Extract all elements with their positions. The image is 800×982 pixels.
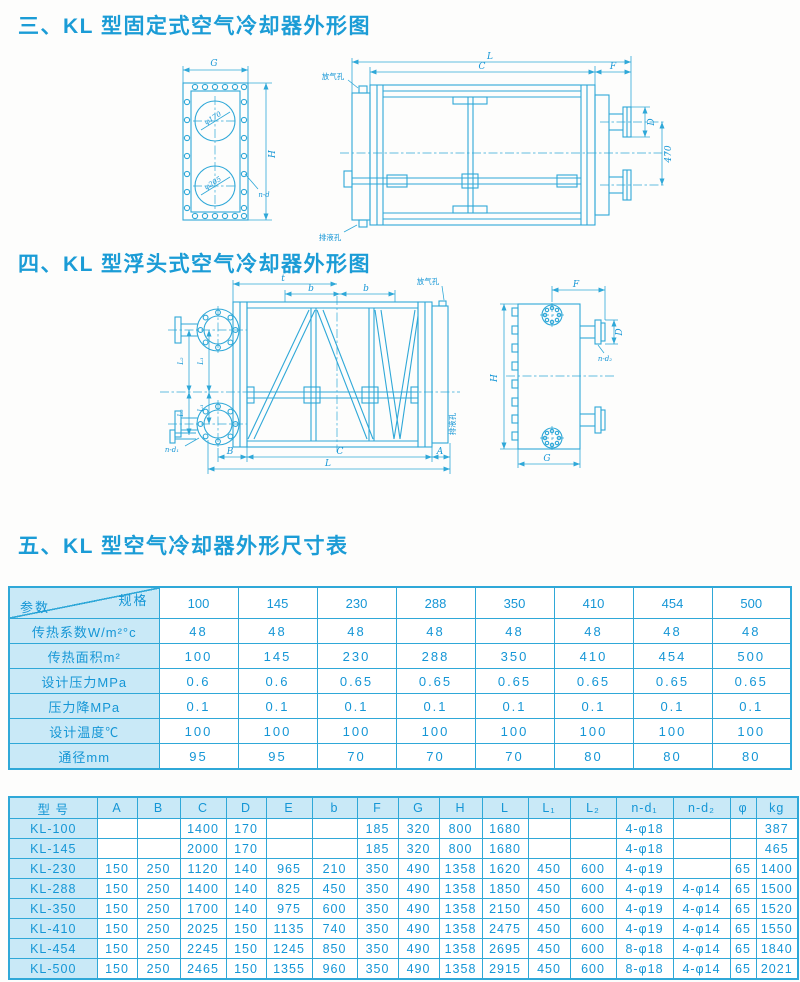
drain-hole-label: 排液孔 (319, 232, 342, 242)
table2-cell (137, 839, 180, 859)
table1-row: 传热面积m²100145230288350410454500 (9, 644, 791, 669)
table1-spec-header: 500 (712, 587, 791, 619)
table2-cell: 4-φ18 (616, 819, 673, 839)
table1-cell: 0.1 (159, 694, 238, 719)
table2-cell: 965 (266, 859, 312, 879)
table2-cell: 8-φ18 (616, 939, 673, 959)
table2-cell: 825 (266, 879, 312, 899)
table2-cell: 185 (357, 839, 398, 859)
table1-cell: 80 (554, 744, 633, 770)
floating-side-view: D n-d₂ F H G (490, 280, 625, 468)
table2-cell (137, 819, 180, 839)
table2-cell: 2025 (180, 919, 226, 939)
table1-cell: 0.6 (159, 669, 238, 694)
table1-cell: 0.1 (317, 694, 396, 719)
table2-cell: 2695 (482, 939, 528, 959)
table2-cell: 4-φ19 (616, 919, 673, 939)
table1-cell: 80 (712, 744, 791, 770)
table2-cell: 600 (570, 959, 616, 980)
table2-cell: 1358 (439, 959, 482, 980)
table2-model-cell: KL-288 (9, 879, 97, 899)
table2-header-cell: H (439, 797, 482, 819)
table2-cell: 150 (97, 919, 137, 939)
table2-cell: 490 (398, 879, 439, 899)
table1-cell: 48 (475, 619, 554, 644)
dim-A-label: A (436, 447, 444, 457)
table2-cell: 1520 (756, 899, 798, 919)
table1-cell: 48 (159, 619, 238, 644)
dim-G-label: G (543, 454, 550, 464)
table2-cell (266, 819, 312, 839)
table2-cell: 140 (226, 859, 266, 879)
table2-cell: 250 (137, 959, 180, 980)
vent-hole (439, 301, 446, 306)
table1-cell: 80 (633, 744, 712, 770)
dim-L1-top-label: L₁ (197, 357, 205, 366)
table2-cell: 600 (570, 879, 616, 899)
table1-cell: 0.65 (396, 669, 475, 694)
table2-cell: 740 (312, 919, 357, 939)
table2-header-cell: L₁ (528, 797, 570, 819)
dim-F-label: F (572, 280, 580, 290)
table1-spec-header: 454 (633, 587, 712, 619)
table2-cell: 250 (137, 879, 180, 899)
table2-cell: 250 (137, 939, 180, 959)
table2-cell: 4-φ18 (616, 839, 673, 859)
table2-model-cell: KL-145 (9, 839, 97, 859)
table2-cell: 150 (226, 939, 266, 959)
table2-cell: 250 (137, 899, 180, 919)
table2-cell (730, 819, 756, 839)
table2-cell: 800 (439, 819, 482, 839)
table2-cell: 600 (570, 899, 616, 919)
dim-G-label: G (210, 59, 217, 69)
dim-b1-label: b (308, 284, 314, 294)
table2-header-cell: C (180, 797, 226, 819)
table1-spec-header: 145 (238, 587, 317, 619)
table1-cell: 100 (238, 719, 317, 744)
table1-spec-header: 230 (317, 587, 396, 619)
table2-cell: 4-φ19 (616, 859, 673, 879)
table2-cell: 600 (570, 859, 616, 879)
dim-L2-bottom-label: L₂ (177, 409, 185, 418)
table2-cell: 490 (398, 859, 439, 879)
table2-cell: 1840 (756, 939, 798, 959)
table2-model-cell: KL-100 (9, 819, 97, 839)
table1-row: 压力降MPa0.10.10.10.10.10.10.10.1 (9, 694, 791, 719)
table1-cell: 230 (317, 644, 396, 669)
table1-cell: 454 (633, 644, 712, 669)
table1-cell: 70 (475, 744, 554, 770)
table2-header-cell: E (266, 797, 312, 819)
table2-cell: 4-φ14 (673, 959, 730, 980)
vent-hole (359, 86, 367, 93)
table2-cell: 65 (730, 859, 756, 879)
table2-cell: 1358 (439, 899, 482, 919)
table1-spec-header: 100 (159, 587, 238, 619)
table2-cell: 1680 (482, 819, 528, 839)
dim-C-label: C (479, 62, 486, 72)
table2-cell: 4-φ19 (616, 899, 673, 919)
table1-cell: 0.1 (396, 694, 475, 719)
fixed-front-view: φ170 φ205 G H n-d (183, 59, 278, 220)
table2-cell: 350 (357, 859, 398, 879)
table1-cell: 100 (159, 719, 238, 744)
section5-title: 五、KL 型空气冷却器外形尺寸表 (18, 530, 348, 560)
table2-cell (97, 839, 137, 859)
table2-cell: 1358 (439, 879, 482, 899)
n-d2-hole-label: n-d₂ (598, 355, 612, 363)
table2-cell: 150 (97, 859, 137, 879)
table2-cell: 350 (357, 919, 398, 939)
table1-row: 设计温度℃100100100100100100100100 (9, 719, 791, 744)
table2-cell: 320 (398, 819, 439, 839)
table1-cell: 0.1 (633, 694, 712, 719)
table2-cell: 210 (312, 859, 357, 879)
catalog-page: 三、KL 型固定式空气冷却器外形图 φ170 (0, 0, 800, 982)
dim-F-label: F (609, 62, 617, 72)
section3-title: 三、KL 型固定式空气冷却器外形图 (18, 10, 371, 40)
table2-cell: 320 (398, 839, 439, 859)
table2-cell: 1358 (439, 859, 482, 879)
bottom-small-flange (540, 426, 564, 450)
table1-row: 设计压力MPa0.60.60.650.650.650.650.650.65 (9, 669, 791, 694)
table2-cell: 350 (357, 899, 398, 919)
table2-cell (312, 839, 357, 859)
table2-cell: 2915 (482, 959, 528, 980)
table1-row-label: 通径mm (9, 744, 159, 770)
table2-cell: 140 (226, 899, 266, 919)
table1-cell: 0.1 (554, 694, 633, 719)
table2-cell (570, 839, 616, 859)
table1-cell: 48 (396, 619, 475, 644)
table2-cell: 4-φ19 (616, 879, 673, 899)
top-inlet-flange (168, 306, 247, 354)
table1-cell: 0.6 (238, 669, 317, 694)
table2-cell: 1355 (266, 959, 312, 980)
table2-cell: 450 (528, 879, 570, 899)
table2-cell: 150 (97, 879, 137, 899)
bottom-outlet-flange (168, 400, 247, 448)
table1-spec-header: 410 (554, 587, 633, 619)
table2-cell: 250 (137, 859, 180, 879)
floating-head-box (432, 306, 448, 443)
table2-cell: 490 (398, 919, 439, 939)
dim-L2-top-label: L₂ (177, 357, 185, 366)
drain-hole (359, 220, 367, 227)
table1-cell: 100 (159, 644, 238, 669)
table2-header-cell: A (97, 797, 137, 819)
table2-cell: 250 (137, 919, 180, 939)
table1-cell: 100 (633, 719, 712, 744)
table2-header-cell: D (226, 797, 266, 819)
table2-cell: 150 (226, 919, 266, 939)
dimensions-table: 型 号ABCDEbFGHLL₁L₂n-d₁n-d₂φkg KL-10014001… (8, 796, 799, 980)
table2-cell: 450 (528, 939, 570, 959)
table2-cell: 1500 (756, 879, 798, 899)
table2-cell (97, 819, 137, 839)
table2-cell: 2150 (482, 899, 528, 919)
corner-param-label: 参数 (20, 597, 50, 616)
dim-B-label: B (226, 447, 234, 457)
table1-spec-header: 350 (475, 587, 554, 619)
table2-cell: 1550 (756, 919, 798, 939)
table2-header-cell: L (482, 797, 528, 819)
table1-cell: 0.65 (475, 669, 554, 694)
table2-cell: 465 (756, 839, 798, 859)
table1-header-row: 规格 参数 100145230288350410454500 (9, 587, 791, 619)
table2-header-cell: B (137, 797, 180, 819)
table2-header-cell: b (312, 797, 357, 819)
table2-cell: 450 (528, 959, 570, 980)
table2-cell: 450 (528, 919, 570, 939)
table2-cell: 65 (730, 939, 756, 959)
table2-cell: 65 (730, 899, 756, 919)
fin-tube-edge (512, 308, 518, 440)
table2-cell (528, 819, 570, 839)
vent-hole-label: 放气孔 (322, 71, 345, 81)
dim-470-label: 470 (664, 145, 674, 163)
table2-model-cell: KL-230 (9, 859, 97, 879)
table2-cell: 1358 (439, 939, 482, 959)
table1-cell: 0.1 (238, 694, 317, 719)
table2-header-cell: φ (730, 797, 756, 819)
table2-cell: 800 (439, 839, 482, 859)
table2-cell (312, 819, 357, 839)
table2-row: KL-3501502501700140975600350490135821504… (9, 899, 798, 919)
table1-row-label: 传热面积m² (9, 644, 159, 669)
table2-cell: 8-φ18 (616, 959, 673, 980)
table2-cell: 150 (226, 959, 266, 980)
table2-cell: 1850 (482, 879, 528, 899)
n-d-hole-label: n-d (258, 191, 270, 199)
table2-cell: 350 (357, 939, 398, 959)
table2-model-cell: KL-454 (9, 939, 97, 959)
table2-cell (730, 839, 756, 859)
table2-cell: 450 (528, 899, 570, 919)
table2-cell (528, 839, 570, 859)
table1-cell: 48 (554, 619, 633, 644)
table2-cell: 4-φ14 (673, 939, 730, 959)
table2-cell: 1245 (266, 939, 312, 959)
table2-cell: 150 (97, 939, 137, 959)
table2-cell: 2000 (180, 839, 226, 859)
table1-cell: 0.65 (554, 669, 633, 694)
table2-header-cell: F (357, 797, 398, 819)
table1-cell: 350 (475, 644, 554, 669)
table2-cell: 2465 (180, 959, 226, 980)
dim-H-label: H (268, 150, 278, 159)
table1-row-label: 压力降MPa (9, 694, 159, 719)
table2-cell: 490 (398, 959, 439, 980)
table1-row-label: 传热系数W/m²°c (9, 619, 159, 644)
dim-L-label: L (486, 52, 493, 62)
table2-cell: 600 (312, 899, 357, 919)
table2-cell: 490 (398, 899, 439, 919)
table2-model-cell: KL-350 (9, 899, 97, 919)
table1-cell: 100 (475, 719, 554, 744)
floating-type-drawing: L₁ L₁ L₂ L₂ t b b 放气孔 排液孔 B (0, 272, 800, 517)
corner-spec-label: 规格 (118, 590, 148, 609)
table1-row: 传热系数W/m²°c4848484848484848 (9, 619, 791, 644)
dim-b2-label: b (363, 284, 369, 294)
table1-cell: 500 (712, 644, 791, 669)
top-small-flange (540, 303, 564, 327)
table1-corner-cell: 规格 参数 (9, 587, 159, 619)
table2-cell: 65 (730, 919, 756, 939)
table1-cell: 0.1 (475, 694, 554, 719)
table2-cell: 2021 (756, 959, 798, 980)
dim-t-label: t (281, 274, 285, 284)
table2-cell: 1400 (180, 879, 226, 899)
dim-C-label: C (337, 447, 344, 457)
table2-cell: 350 (357, 879, 398, 899)
table2-cell: 4-φ14 (673, 899, 730, 919)
table1-cell: 48 (712, 619, 791, 644)
table2-cell: 387 (756, 819, 798, 839)
table2-row: KL-145200017018532080016804-φ18465 (9, 839, 798, 859)
table1-cell: 100 (712, 719, 791, 744)
dim-L-label: L (324, 459, 331, 469)
table1-cell: 48 (633, 619, 712, 644)
table2-cell: 65 (730, 879, 756, 899)
table2-cell: 600 (570, 919, 616, 939)
top-circle-diameter-label: φ170 (203, 110, 223, 127)
table1-cell: 145 (238, 644, 317, 669)
table2-cell: 975 (266, 899, 312, 919)
table2-header-cell: G (398, 797, 439, 819)
table2-model-cell: KL-410 (9, 919, 97, 939)
table1-spec-header: 288 (396, 587, 475, 619)
fixed-side-view: 放气孔 排液孔 D 470 (319, 52, 674, 242)
table2-cell: 1120 (180, 859, 226, 879)
table2-row: KL-4541502502245150124585035049013582695… (9, 939, 798, 959)
table1-cell: 100 (396, 719, 475, 744)
table2-cell: 170 (226, 819, 266, 839)
table2-row: KL-5001502502465150135596035049013582915… (9, 959, 798, 980)
table2-cell: 600 (570, 939, 616, 959)
table2-cell: 850 (312, 939, 357, 959)
table2-row: KL-2301502501120140965210350490135816204… (9, 859, 798, 879)
table2-cell: 490 (398, 939, 439, 959)
drain-hole-label: 排液孔 (447, 412, 457, 435)
table1-cell: 0.65 (317, 669, 396, 694)
table1-row: 通径mm9595707070808080 (9, 744, 791, 770)
table1-cell: 0.1 (712, 694, 791, 719)
table2-cell: 450 (312, 879, 357, 899)
table2-header-cell: L₂ (570, 797, 616, 819)
dim-H-label: H (490, 374, 500, 383)
table1-cell: 100 (554, 719, 633, 744)
dim-D-label: D (615, 328, 625, 336)
table2-cell: 1400 (756, 859, 798, 879)
table2-cell: 185 (357, 819, 398, 839)
table2-cell: 1700 (180, 899, 226, 919)
fixed-type-drawing: φ170 φ205 G H n-d 放气孔 排液孔 (0, 50, 800, 250)
table2-cell (673, 859, 730, 879)
table2-header-cell: 型 号 (9, 797, 97, 819)
table2-cell (673, 819, 730, 839)
vent-hole-label: 放气孔 (417, 276, 440, 286)
table2-cell (570, 819, 616, 839)
table2-cell: 150 (97, 899, 137, 919)
table2-row: KL-4101502502025150113574035049013582475… (9, 919, 798, 939)
table1-cell: 0.65 (633, 669, 712, 694)
table2-cell: 1135 (266, 919, 312, 939)
table2-cell: 1358 (439, 919, 482, 939)
table2-row: KL-100140017018532080016804-φ18387 (9, 819, 798, 839)
table1-row-label: 设计温度℃ (9, 719, 159, 744)
table2-header-row: 型 号ABCDEbFGHLL₁L₂n-d₁n-d₂φkg (9, 797, 798, 819)
table2-cell (266, 839, 312, 859)
table1-cell: 95 (159, 744, 238, 770)
table1-cell: 95 (238, 744, 317, 770)
table2-cell: 65 (730, 959, 756, 980)
table2-cell: 170 (226, 839, 266, 859)
table2-cell: 140 (226, 879, 266, 899)
table2-cell: 1620 (482, 859, 528, 879)
floating-front-view: L₁ L₁ L₂ L₂ t b b 放气孔 排液孔 B (160, 274, 460, 474)
table2-cell: 4-φ14 (673, 879, 730, 899)
n-d1-hole-label: n-d₁ (165, 446, 179, 454)
table2-cell: 350 (357, 959, 398, 980)
table1-row-label: 设计压力MPa (9, 669, 159, 694)
table2-cell: 450 (528, 859, 570, 879)
bottom-circle-diameter-label: φ205 (203, 175, 223, 192)
table2-cell: 1680 (482, 839, 528, 859)
table2-cell: 1400 (180, 819, 226, 839)
table1-cell: 70 (317, 744, 396, 770)
dim-D-label: D (647, 118, 657, 126)
table2-cell: 2475 (482, 919, 528, 939)
table2-header-cell: n-d₁ (616, 797, 673, 819)
table2-header-cell: n-d₂ (673, 797, 730, 819)
table1-cell: 48 (317, 619, 396, 644)
table2-cell: 4-φ14 (673, 919, 730, 939)
dim-L1-bottom-label: L₁ (197, 404, 205, 413)
table1-cell: 70 (396, 744, 475, 770)
table2-model-cell: KL-500 (9, 959, 97, 980)
table1-cell: 0.65 (712, 669, 791, 694)
parameters-table: 规格 参数 100145230288350410454500 传热系数W/m²°… (8, 586, 792, 770)
table2-row: KL-2881502501400140825450350490135818504… (9, 879, 798, 899)
bolt-holes (184, 84, 246, 218)
table2-cell: 150 (97, 959, 137, 980)
truss-diagonals (248, 310, 418, 439)
table1-cell: 410 (554, 644, 633, 669)
table2-header-cell: kg (756, 797, 798, 819)
table2-cell: 960 (312, 959, 357, 980)
table1-cell: 48 (238, 619, 317, 644)
table1-cell: 288 (396, 644, 475, 669)
table2-cell (673, 839, 730, 859)
table1-cell: 100 (317, 719, 396, 744)
table2-cell: 2245 (180, 939, 226, 959)
